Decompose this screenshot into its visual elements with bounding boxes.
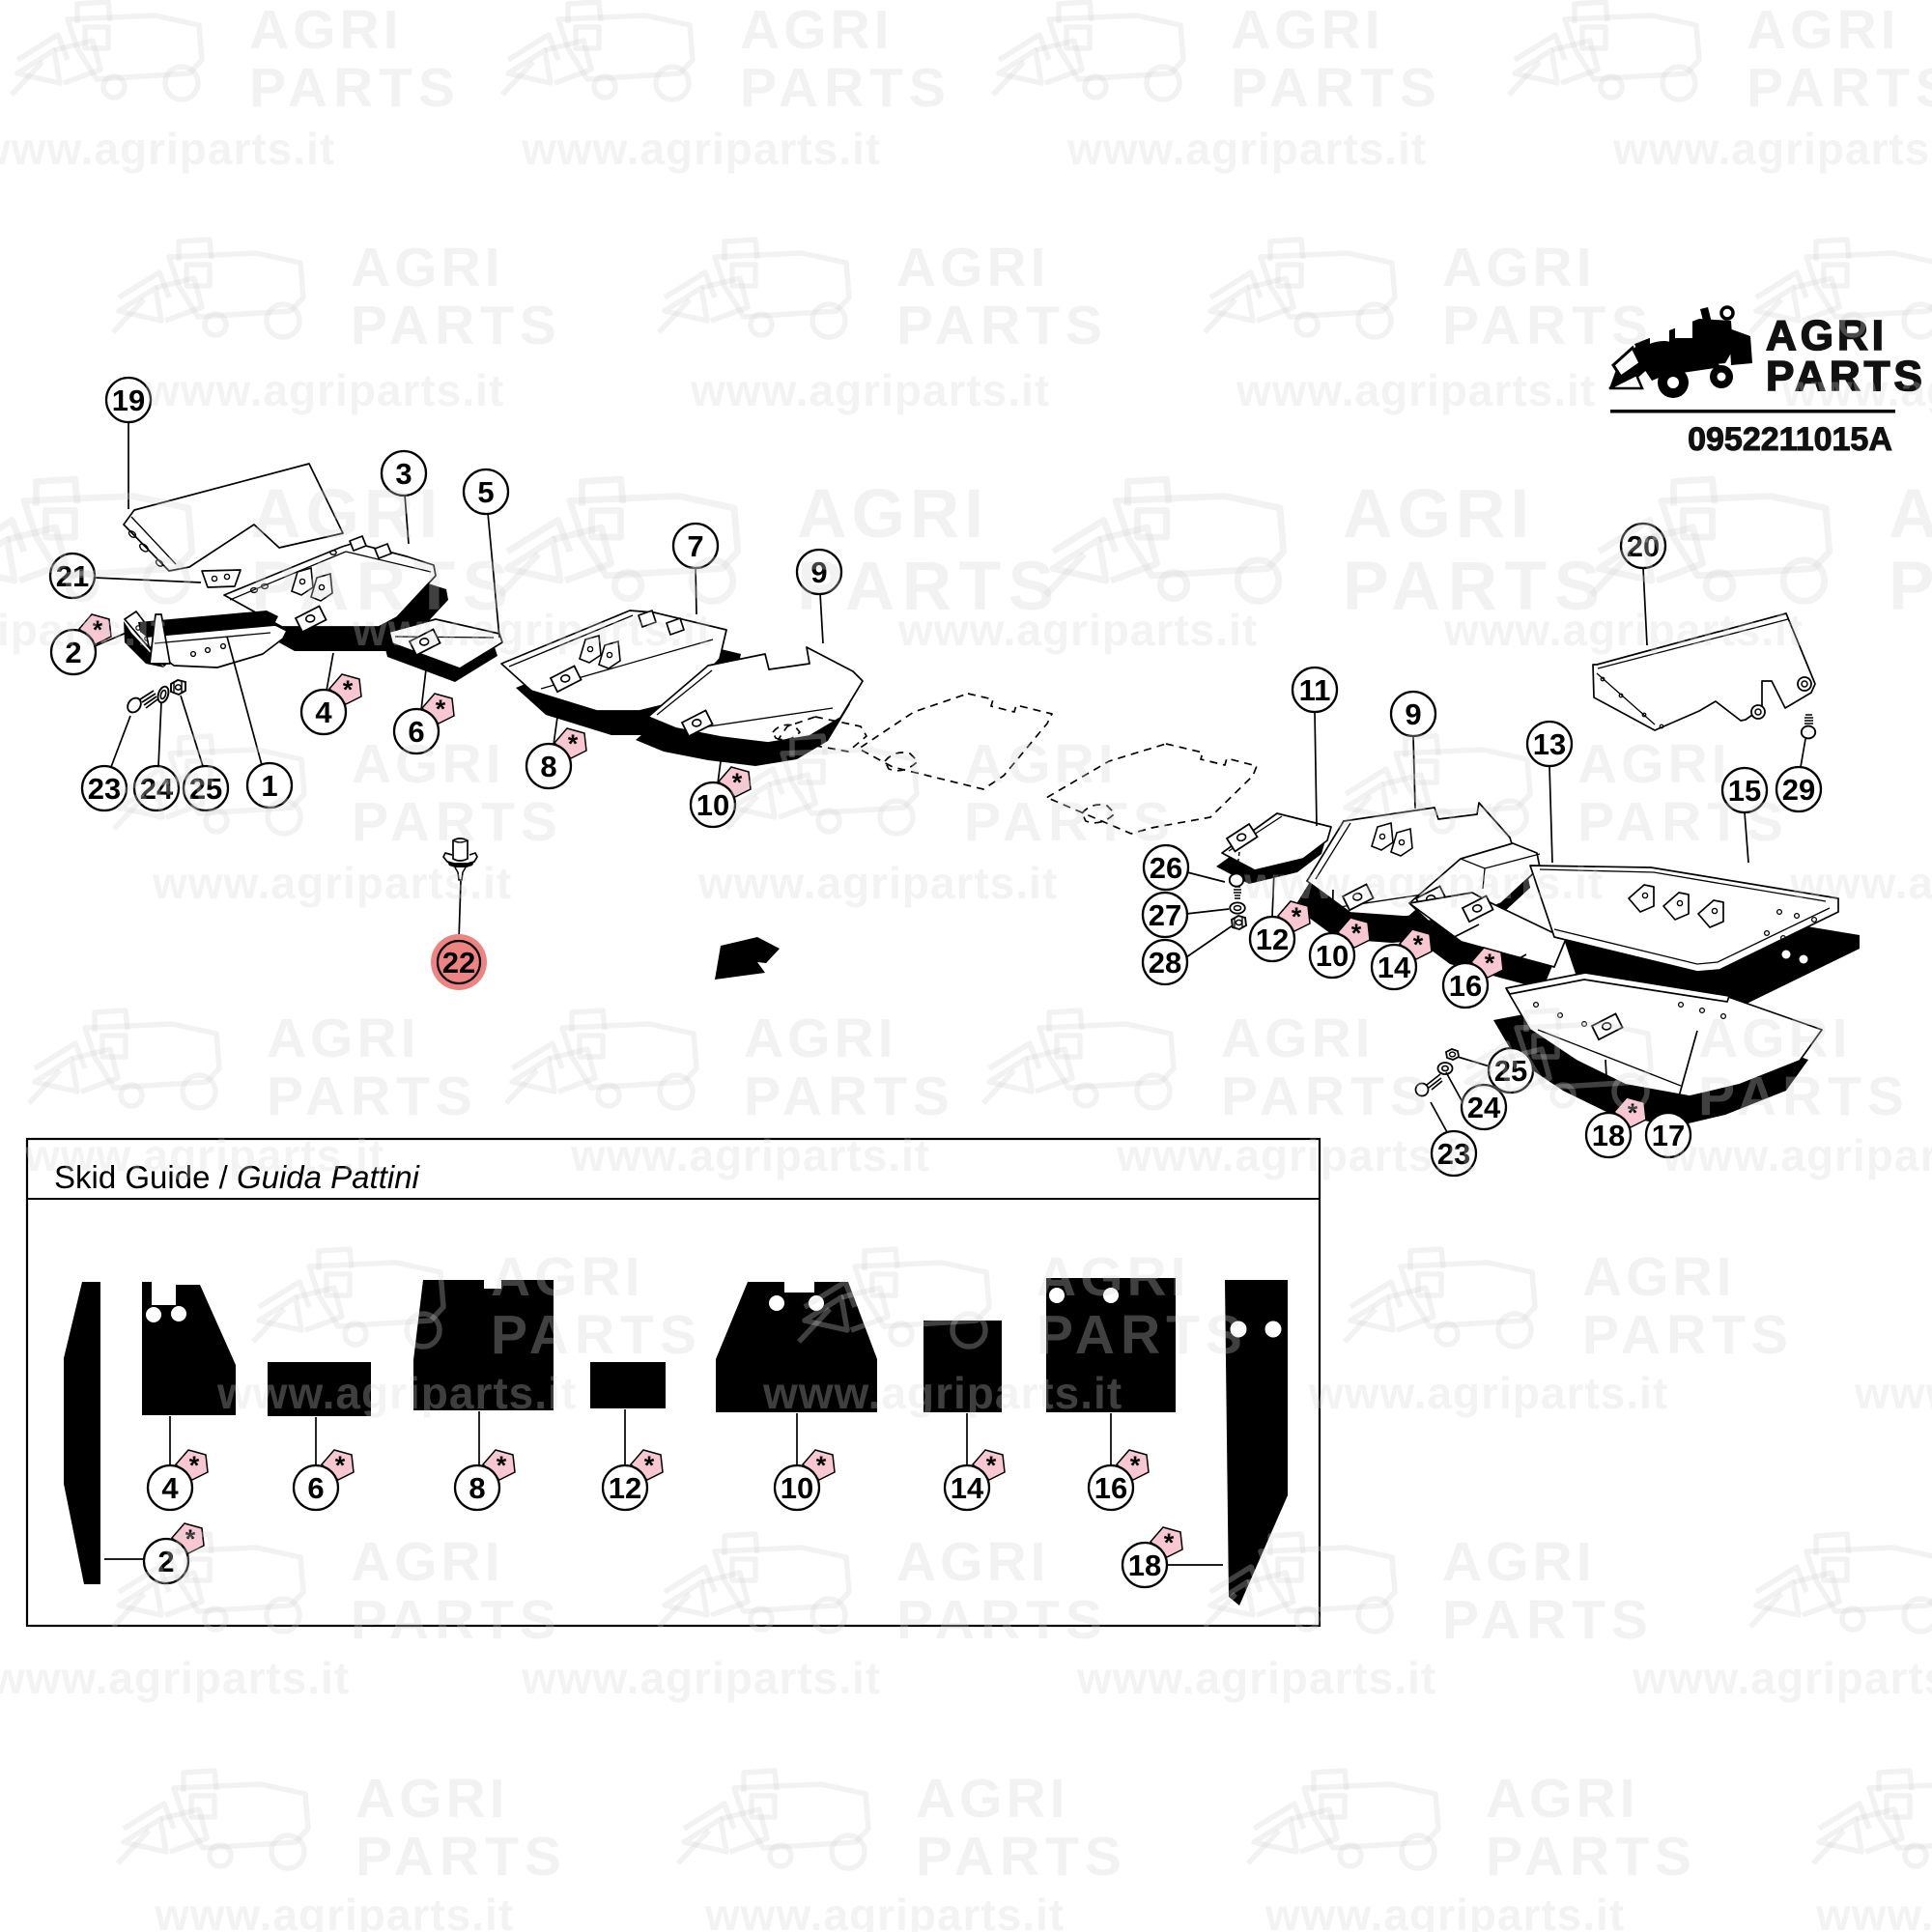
svg-text:12: 12 [609,1471,641,1505]
svg-text:8: 8 [469,1471,485,1505]
svg-text:22: 22 [442,946,475,980]
svg-text:23: 23 [88,772,121,806]
svg-text:0952211015A: 0952211015A [1688,421,1892,458]
svg-text:14: 14 [951,1471,984,1505]
svg-text:18: 18 [1592,1119,1625,1152]
svg-text:10: 10 [696,788,729,822]
svg-text:27: 27 [1149,898,1181,932]
svg-text:7: 7 [687,529,703,563]
svg-text:6: 6 [307,1471,324,1505]
svg-text:26: 26 [1150,851,1182,885]
svg-text:9: 9 [1405,697,1421,731]
svg-text:16: 16 [1094,1471,1127,1505]
svg-text:1: 1 [261,769,277,803]
svg-text:12: 12 [1256,923,1289,956]
svg-text:8: 8 [540,750,556,783]
svg-text:4: 4 [161,1471,179,1505]
svg-text:19: 19 [112,384,145,417]
svg-text:18: 18 [1128,1548,1161,1582]
svg-text:11: 11 [1299,673,1331,707]
svg-text:10: 10 [1316,939,1349,973]
svg-text:14: 14 [1378,951,1411,984]
svg-text:4: 4 [315,696,332,729]
svg-text:5: 5 [477,475,494,509]
svg-text:16: 16 [1449,969,1482,1003]
svg-text:10: 10 [781,1471,813,1505]
svg-text:24: 24 [1467,1091,1501,1124]
svg-text:28: 28 [1149,946,1181,980]
svg-text:13: 13 [1533,727,1566,761]
